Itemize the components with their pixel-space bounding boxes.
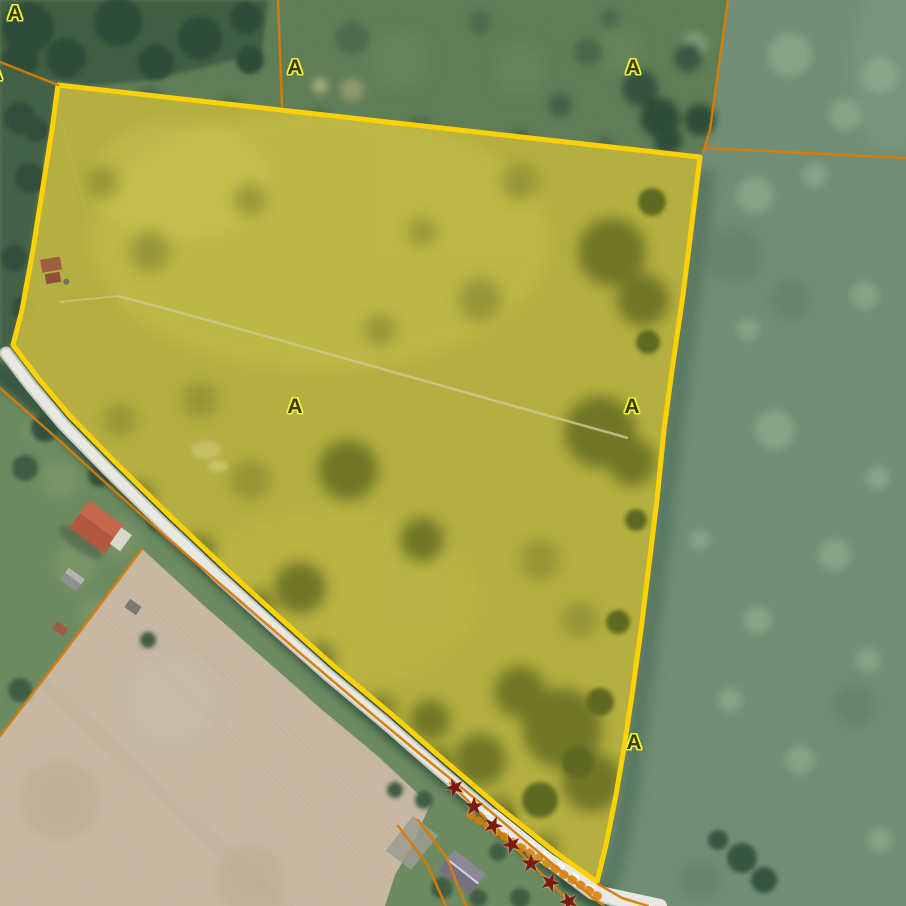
grain-overlay [0, 0, 906, 906]
aerial-map-canvas[interactable]: AAAAAAA★★★★★★★ [0, 0, 906, 906]
map-terrain [0, 0, 906, 906]
